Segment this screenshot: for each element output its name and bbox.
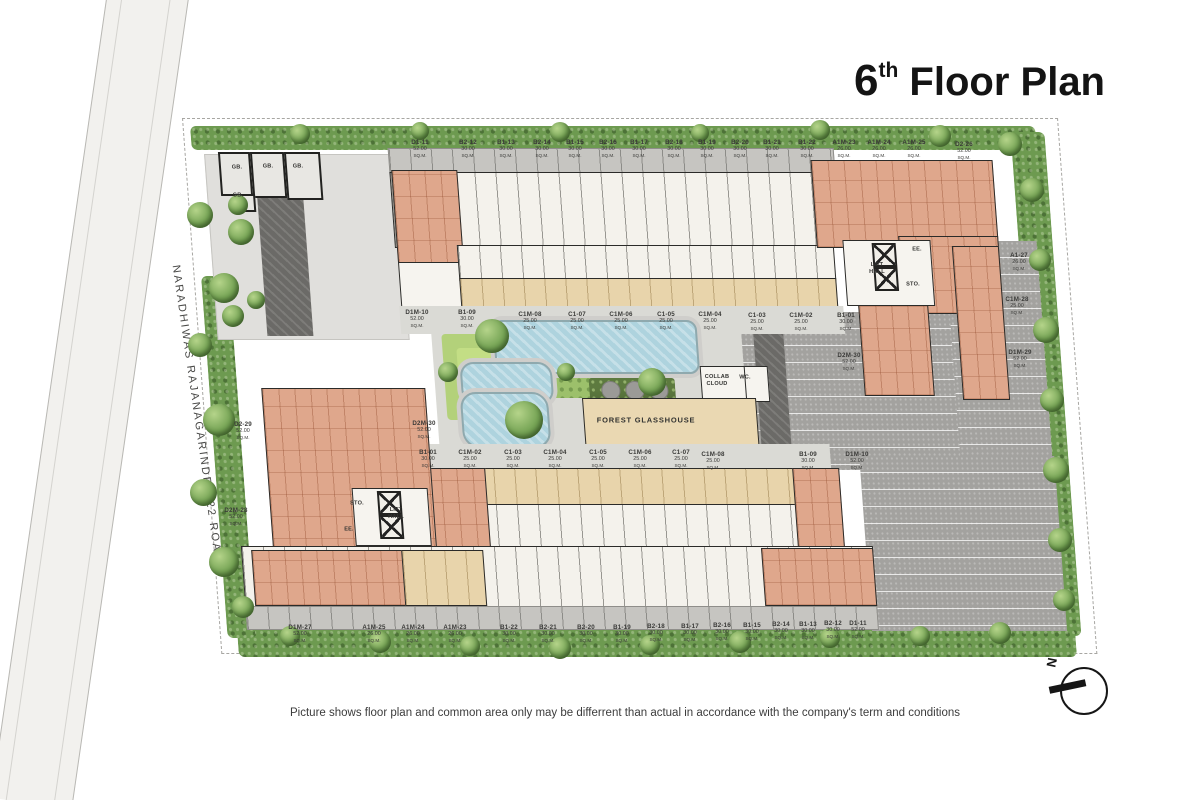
road [0,0,190,800]
tree-icon [1048,528,1072,552]
tree-icon [228,195,248,215]
west-core [352,488,432,546]
tree-icon [557,363,575,381]
tree-icon [729,631,751,653]
garbage-room [284,152,324,200]
tree-icon [505,401,543,439]
northwest-tower [391,170,464,264]
tree-icon [820,628,840,648]
lift-shaft [377,491,403,515]
wall [743,367,747,401]
east-core [842,240,935,306]
tree-icon [280,626,300,646]
tree-icon [550,122,570,142]
tree-icon [247,291,265,309]
tree-icon [232,596,254,618]
tree-icon [998,132,1022,156]
south-walkway [429,444,831,470]
tree-icon [290,124,310,144]
road-lane-line [6,0,125,800]
tree-icon [1020,178,1044,202]
page-title: 6th Floor Plan [854,56,1105,106]
tree-icon [190,479,217,506]
disclaimer-text: Picture shows floor plan and common area… [290,707,960,719]
north-label: N [1043,656,1060,668]
inner-south-pool-units [429,468,834,506]
site-plan [190,126,1073,642]
tree-icon [638,368,666,396]
parking-southeast [859,456,1067,631]
tree-icon [411,122,429,140]
tree-icon [1033,317,1059,343]
tree-icon [691,124,709,142]
title-ordinal: th [878,59,898,82]
tree-icon [989,622,1011,644]
tree-icon [640,635,660,655]
garbage-room [218,152,253,196]
tree-icon [369,631,391,653]
lift-shaft [873,267,899,291]
lift-shaft [379,515,405,539]
title-text: Floor Plan [898,60,1105,104]
tree-icon [475,319,509,353]
tree-icon [910,626,930,646]
title-number: 6 [854,56,878,105]
tree-icon [187,202,213,228]
tree-icon [209,547,239,577]
east-tower-north [810,160,998,248]
tree-icon [549,637,571,659]
lift-shaft [872,243,898,267]
road-lane-line [53,0,172,800]
forest-glasshouse [582,398,760,446]
northwest-lobby [398,262,465,308]
tree-icon [188,333,212,357]
east-tower-south [858,302,935,396]
inner-south-units [432,504,837,548]
inner-north-units [457,245,837,281]
hedge-top [190,126,1037,150]
tree-icon [203,404,235,436]
tree-icon [228,219,254,245]
tree-icon [1043,457,1069,483]
tree-icon [929,125,951,147]
tree-icon [438,362,458,382]
tree-icon [209,273,239,303]
north-arrow-circle [1060,667,1108,715]
tree-icon [810,120,830,140]
tree-icon [1053,589,1075,611]
south-wing-tan [401,550,487,606]
garbage-room [250,152,287,198]
tree-icon [222,305,244,327]
tree-icon [460,636,480,656]
tree-icon [1040,388,1064,412]
collab-cloud-room [700,366,771,402]
south-wing-east-salmon [761,548,877,606]
tree-icon [1029,249,1051,271]
inner-south-east-block [792,468,845,548]
south-wing-west-salmon [251,550,407,606]
south-wing-balconies [245,606,879,630]
floor-plan-canvas: NARADHIWAS RAJANAGARINDRA 22 ROAD [0,0,1200,800]
